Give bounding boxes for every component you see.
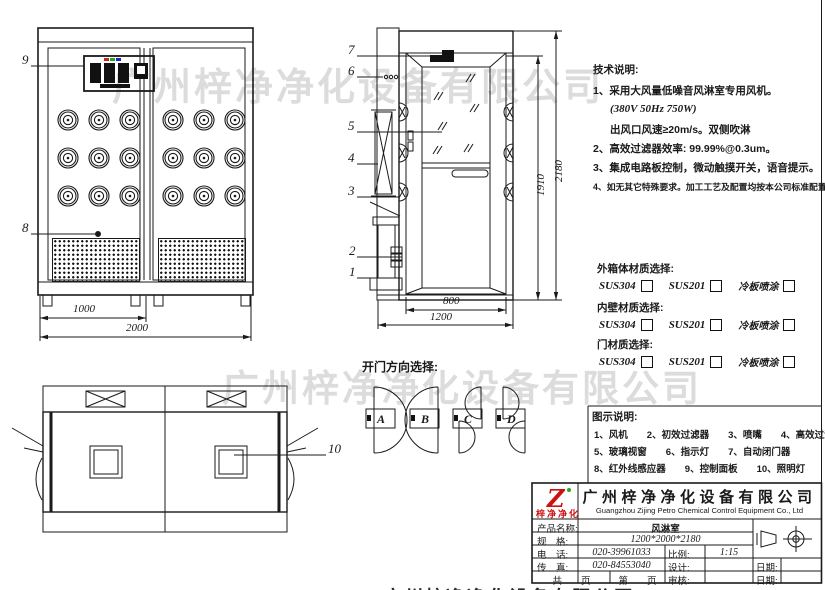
tech-notes-title: 技术说明: — [593, 62, 639, 77]
product-name-label: 产品名称: — [537, 521, 578, 535]
checkbox-icon — [783, 280, 795, 292]
scale-value: 1:15 — [705, 547, 753, 558]
door-option-b-label: B — [421, 412, 429, 427]
design-label: 设计: — [668, 560, 690, 574]
checkbox-icon — [783, 319, 795, 331]
material-group-3-options: SUS304 SUS201 冷板喷涂 — [599, 354, 811, 369]
material-group-1-title: 外箱体材质选择: — [597, 261, 674, 276]
audit-label: 审核: — [668, 573, 690, 587]
dim-2000: 2000 — [126, 322, 148, 334]
material-option-sus304: SUS304 — [599, 280, 636, 292]
material-option-sus201: SUS201 — [669, 280, 706, 292]
material-option-sus304: SUS304 — [599, 319, 636, 331]
spec-label: 规 格: — [537, 534, 568, 548]
part-label-7: 7 — [348, 42, 355, 58]
company-name-cn: 广州梓净净化设备有限公司 — [578, 486, 821, 507]
dim-1910: 1910 — [535, 174, 547, 196]
tech-note-2: (380V 50Hz 750W) — [610, 103, 697, 115]
dim-1000: 1000 — [73, 303, 95, 315]
nozzle-grid-icons — [58, 110, 245, 206]
door-direction-icons — [366, 387, 525, 453]
door-option-a-icon — [366, 387, 407, 453]
tech-note-5: 3、集成电路板控制，微动触摸开关，语音提示。 — [593, 160, 819, 175]
part-label-4: 4 — [348, 150, 355, 166]
part-label-10: 10 — [328, 441, 341, 457]
ir-sensor-dot — [96, 232, 101, 237]
fan-icon — [370, 202, 402, 290]
indicator-lights-icon — [384, 75, 397, 78]
legend-line-1: 1、风机 2、初效过滤器 3、喷嘴 4、高效过滤器 — [594, 427, 825, 441]
checkbox-icon — [710, 280, 722, 292]
material-option-sus201: SUS201 — [669, 356, 706, 368]
drawing-sheet: 广州梓净净化设备有限公司 广州梓净净化设备有限公司 — [0, 0, 825, 590]
tel-value: 020-39961033 — [578, 547, 665, 558]
part-label-3: 3 — [348, 183, 355, 199]
tech-note-4: 2、高效过滤器效率: 99.99%@0.3um。 — [593, 141, 776, 156]
dim-1200: 1200 — [430, 311, 452, 323]
fax-value: 020-84553040 — [578, 560, 665, 571]
grille-left — [52, 238, 140, 282]
fax-label: 传 真: — [537, 560, 568, 574]
material-option-sus304: SUS304 — [599, 356, 636, 368]
checkbox-icon — [641, 280, 653, 292]
part-label-2: 2 — [349, 243, 356, 259]
tech-note-3: 出风口风速≥20m/s。双侧吹淋 — [610, 122, 751, 137]
part-label-1: 1 — [349, 264, 356, 280]
date-label-1: 日期: — [756, 560, 778, 574]
bottom-clipped-text: 广州梓净净化设备有限公司 — [383, 583, 635, 590]
material-option-coldplate: 冷板喷涂 — [738, 317, 778, 332]
material-option-coldplate: 冷板喷涂 — [738, 278, 778, 293]
date-label-2: 日期: — [756, 573, 778, 587]
hepa-filter-icon — [371, 110, 396, 196]
material-group-1-options: SUS304 SUS201 冷板喷涂 — [599, 278, 811, 293]
legend-title: 图示说明: — [592, 409, 638, 424]
material-group-2-title: 内壁材质选择: — [597, 300, 664, 315]
part-label-8: 8 — [22, 220, 29, 236]
part-label-5: 5 — [348, 118, 355, 134]
material-group-2-options: SUS304 SUS201 冷板喷涂 — [599, 317, 811, 332]
legend-line-3: 8、红外线感应器 9、控制面板 10、照明灯 — [594, 461, 805, 475]
door-closer-icon — [430, 55, 454, 62]
checkbox-icon — [710, 356, 722, 368]
checkbox-icon — [783, 356, 795, 368]
company-name-en: Guangzhou Zijing Petro Chemical Control … — [578, 506, 821, 515]
side-view-linework — [357, 28, 562, 329]
tel-label: 电 话: — [537, 547, 568, 561]
dim-800: 800 — [443, 295, 460, 307]
material-group-3-title: 门材质选择: — [597, 337, 653, 352]
legend-line-2: 5、玻璃视窗 6、指示灯 7、自动闭门器 — [594, 444, 790, 458]
scale-label: 比例: — [668, 547, 690, 561]
checkbox-icon — [710, 319, 722, 331]
jamb-nozzle-icons — [399, 103, 513, 201]
plan-view-linework — [12, 386, 326, 532]
door-direction-title: 开门方向选择: — [362, 358, 438, 375]
material-option-sus201: SUS201 — [669, 319, 706, 331]
logo-leaf-icon — [567, 488, 571, 492]
product-name-value: 风淋室 — [578, 521, 753, 535]
part-label-9: 9 — [22, 52, 29, 68]
checkbox-icon — [641, 356, 653, 368]
door-option-a-label: A — [377, 412, 385, 427]
checkbox-icon — [641, 319, 653, 331]
door-option-d-label: D — [507, 412, 516, 427]
glass-hatch-marks — [433, 74, 479, 154]
material-option-coldplate: 冷板喷涂 — [738, 354, 778, 369]
dim-2180: 2180 — [553, 160, 565, 182]
spec-value: 1200*2000*2180 — [578, 534, 753, 545]
company-logo-text: 梓净净化 — [536, 507, 580, 520]
tech-note-6: 4、如无其它特殊要求。加工工艺及配置均按本公司标准配置。 — [593, 180, 825, 193]
door-handle-icon — [452, 170, 488, 177]
front-view-linework — [31, 28, 253, 341]
projection-symbol-icon — [757, 526, 812, 552]
tech-note-1: 1、采用大风量低噪音风淋室专用风机。 — [593, 83, 777, 98]
door-option-c-label: C — [464, 412, 472, 427]
part-label-6: 6 — [348, 63, 355, 79]
grille-right — [158, 238, 246, 282]
